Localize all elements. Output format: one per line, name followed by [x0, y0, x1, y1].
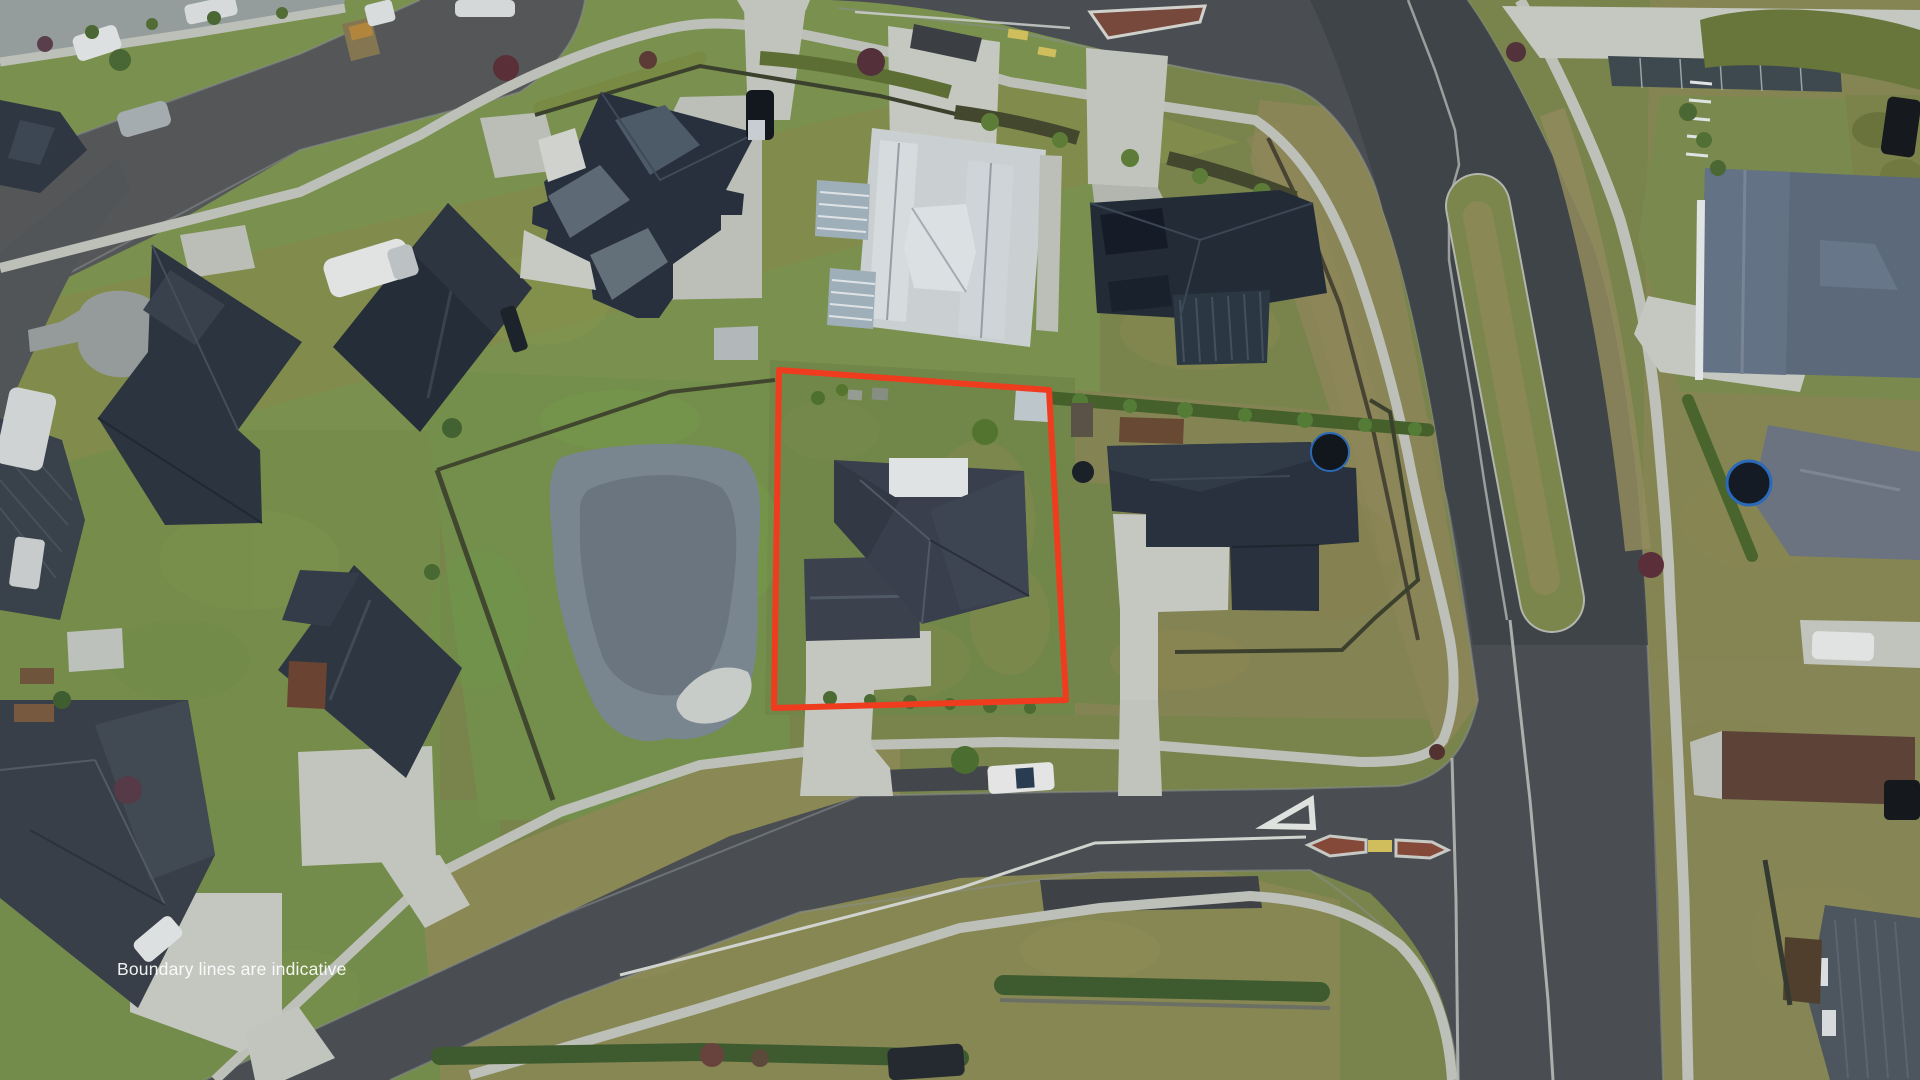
svg-text:Boundary lines are indicative: Boundary lines are indicative: [117, 959, 347, 979]
